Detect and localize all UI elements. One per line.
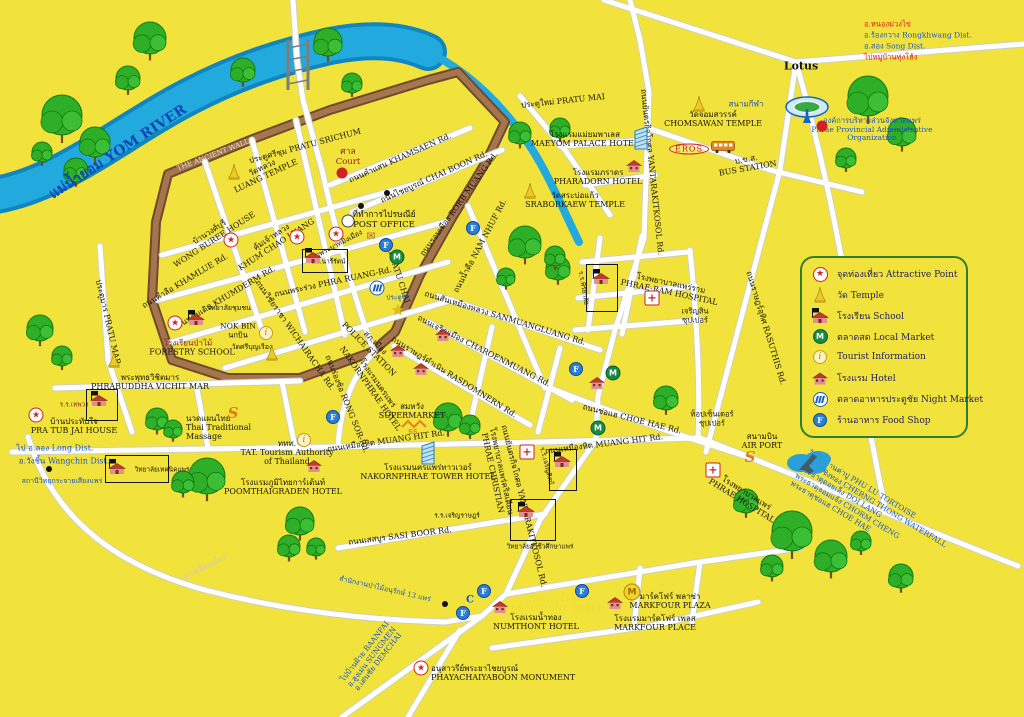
legend-item-label: จุดท่องเที่ยว Attractive Point xyxy=(837,267,958,281)
legend-item-school: โรงเรียน School xyxy=(810,306,958,326)
nightmarket-legend-icon xyxy=(810,392,830,407)
legend-item-label: Tourist Information xyxy=(837,352,926,362)
legend: ★จุดท่องเที่ยว Attractive Pointวัด Templ… xyxy=(800,256,968,438)
legend-item-nightmarket: ตลาดอาหารประตูชัย Night Market xyxy=(810,389,958,409)
temple-icon xyxy=(814,287,826,303)
legend-item-star: ★จุดท่องเที่ยว Attractive Point xyxy=(810,264,958,284)
star-legend-icon: ★ xyxy=(810,267,830,282)
legend-item-market: Mตลาดสด Local Market xyxy=(810,327,958,347)
legend-item-temple: วัด Temple xyxy=(810,285,958,305)
legend-item-hotel: โรงแรม Hotel xyxy=(810,368,958,388)
market-legend-icon: M xyxy=(810,329,830,344)
local-market-icon: M xyxy=(813,329,828,344)
legend-item-foodshop: Fร้านอาหาร Food Shop xyxy=(810,410,958,430)
temple-legend-icon xyxy=(810,287,830,303)
legend-item-label: ร้านอาหาร Food Shop xyxy=(837,413,931,427)
legend-item-label: โรงแรม Hotel xyxy=(837,371,896,385)
night-market-icon xyxy=(813,392,828,407)
legend-item-label: ตลาดสด Local Market xyxy=(837,330,934,344)
hotel-legend-icon xyxy=(810,372,830,385)
tourist-info-icon: i xyxy=(813,350,827,364)
attraction-star-icon: ★ xyxy=(813,267,828,282)
legend-item-label: วัด Temple xyxy=(837,288,884,302)
phrae-tourist-map: แม่น้ำยอม YOM RIVERTHE ANCIENT WALLประตู… xyxy=(0,0,1024,717)
legend-item-label: ตลาดอาหารประตูชัย Night Market xyxy=(837,392,983,406)
legend-item-info: iTourist Information xyxy=(810,347,958,367)
info-legend-icon: i xyxy=(810,350,830,364)
foodshop-legend-icon: F xyxy=(810,413,830,427)
school-legend-icon xyxy=(810,308,830,324)
food-shop-icon: F xyxy=(813,413,827,427)
legend-item-label: โรงเรียน School xyxy=(837,309,904,323)
hotel-icon xyxy=(812,372,828,385)
school-icon xyxy=(811,308,829,324)
